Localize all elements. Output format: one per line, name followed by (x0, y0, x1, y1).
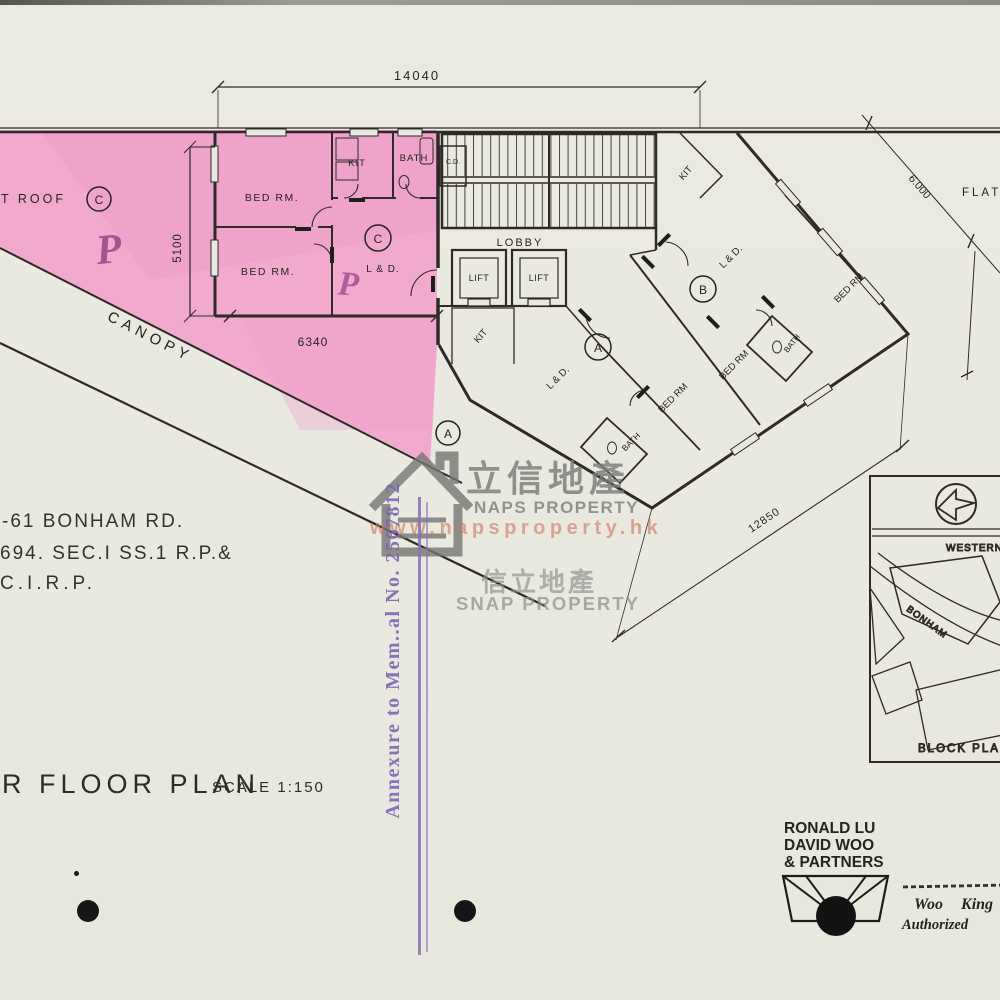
signature-dashed-line (903, 885, 1000, 887)
flat-c-bed2-label: BED RM. (241, 266, 295, 278)
unit-a2-letter: A (444, 427, 452, 441)
cd-label: C.D. (446, 159, 460, 166)
flat-c-kit-label: KIT (348, 158, 366, 169)
address-line-2: 694. SEC.I SS.1 R.P.& (0, 543, 233, 565)
flat-b-ld-label: L & D. (718, 244, 745, 271)
flat-b-bed1-label: BED RM (832, 271, 866, 305)
flat-b-bath-label: BATH (782, 332, 802, 354)
firm-name-line1: RONALD LU (784, 820, 875, 837)
scan-edge-strip (0, 0, 1000, 5)
flat-b-kit-label: KIT (677, 164, 695, 183)
flat-a-ld-label: L & D. (545, 365, 572, 392)
firm-logo: RONALD LU DAVID WOO & PARTNERS (783, 820, 888, 936)
ink-speck (74, 871, 79, 876)
flat-a-bath-label: BATH (620, 431, 643, 454)
signature-role: Authorized (901, 917, 969, 933)
address-line-3: C.I.R.P. (0, 573, 96, 595)
floor-plan-drawing: 14040 5100 6340 6.000 12850 FLAT ROOF FL… (0, 0, 1000, 1000)
memorial-stamp-line (418, 497, 421, 955)
scanned-floor-plan-page: 14040 5100 6340 6.000 12850 FLAT ROOF FL… (0, 0, 1000, 1000)
dim-top-label: 14040 (394, 68, 440, 83)
unit-a-letter: A (594, 341, 602, 355)
memorial-stamp-line (426, 502, 428, 952)
firm-name-line3: & PARTNERS (784, 854, 884, 871)
lobby-label: LOBBY (497, 237, 544, 249)
signature-block: Woo King Authorized (901, 885, 1000, 933)
flat-c-ld-label: L & D. (366, 264, 399, 275)
block-plan-road-curved-label: BONHAM (904, 604, 949, 641)
block-plan-caption: BLOCK PLAN (918, 743, 1000, 755)
unit-c-letter: C (374, 232, 383, 246)
block-plan-inset: WESTERN BONHAM BLOCK PLAN (870, 476, 1000, 762)
flat-roof-right-label: FLAT ROOF (962, 187, 1000, 199)
address-line-1: -61 BONHAM RD. (2, 511, 184, 533)
stair-core (439, 134, 656, 345)
handwritten-p-mark: P (337, 265, 360, 304)
lift-2-label: LIFT (529, 273, 550, 283)
memorial-stamp-text: Annexure to Mem..al No. 2567812 (382, 482, 405, 952)
punch-hole (77, 900, 99, 922)
plan-scale: SCALE 1:150 (212, 779, 325, 796)
logo-dot (816, 896, 856, 936)
flat-c-bath-label: BATH (400, 153, 429, 164)
lift-1-label: LIFT (469, 273, 490, 283)
unit-c-roof-letter: C (95, 193, 104, 207)
flat-a-bed-label: BED RM (656, 381, 690, 415)
dim-right-label: 6.000 (906, 173, 933, 202)
flat-b-bed2-label: BED RM (717, 348, 751, 382)
handwritten-p-mark: P (94, 225, 125, 275)
punch-hole (454, 900, 476, 922)
dim-left-label: 5100 (172, 233, 184, 263)
signature-name: Woo King (914, 896, 993, 913)
unit-b-letter: B (699, 283, 707, 297)
north-arrow-icon (938, 490, 974, 520)
flat-c-bed1-label: BED RM. (245, 192, 299, 204)
flat-roof-left-label: FLAT ROOF (0, 192, 66, 206)
firm-name-line2: DAVID WOO (784, 837, 874, 854)
flat-a-kit-label: KIT (472, 327, 490, 346)
dim-flat-c-label: 6340 (298, 335, 329, 349)
block-plan-road-top-label: WESTERN (946, 543, 1000, 554)
